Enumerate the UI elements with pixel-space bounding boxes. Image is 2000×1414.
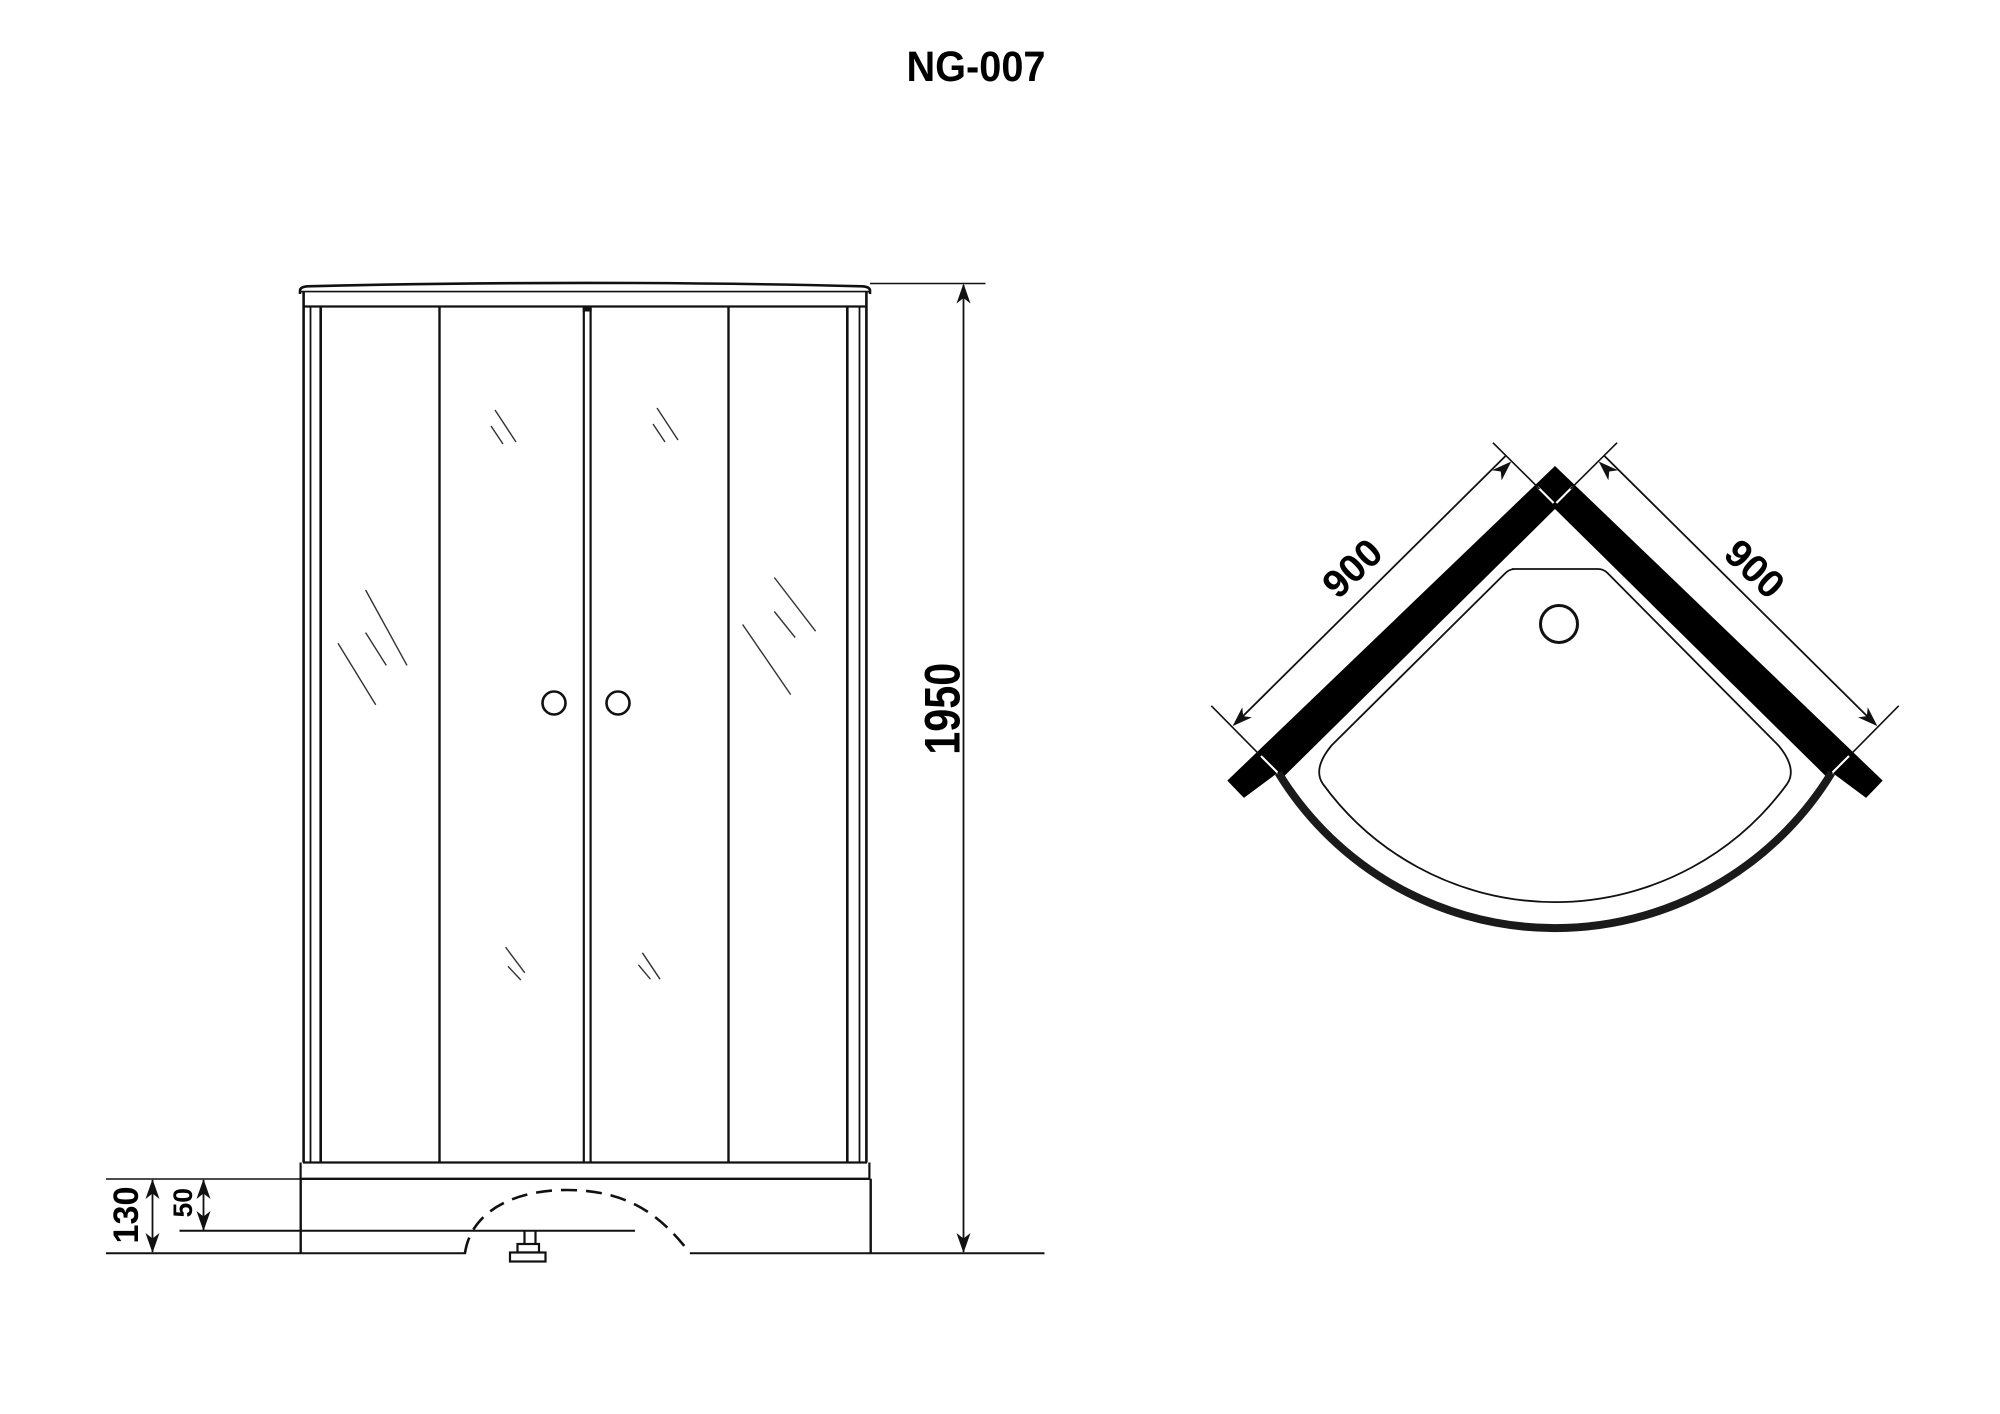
svg-text:1950: 1950: [915, 663, 971, 755]
svg-text:50: 50: [168, 1188, 198, 1218]
svg-text:NG-007: NG-007: [907, 43, 1046, 91]
svg-text:130: 130: [106, 1187, 146, 1244]
